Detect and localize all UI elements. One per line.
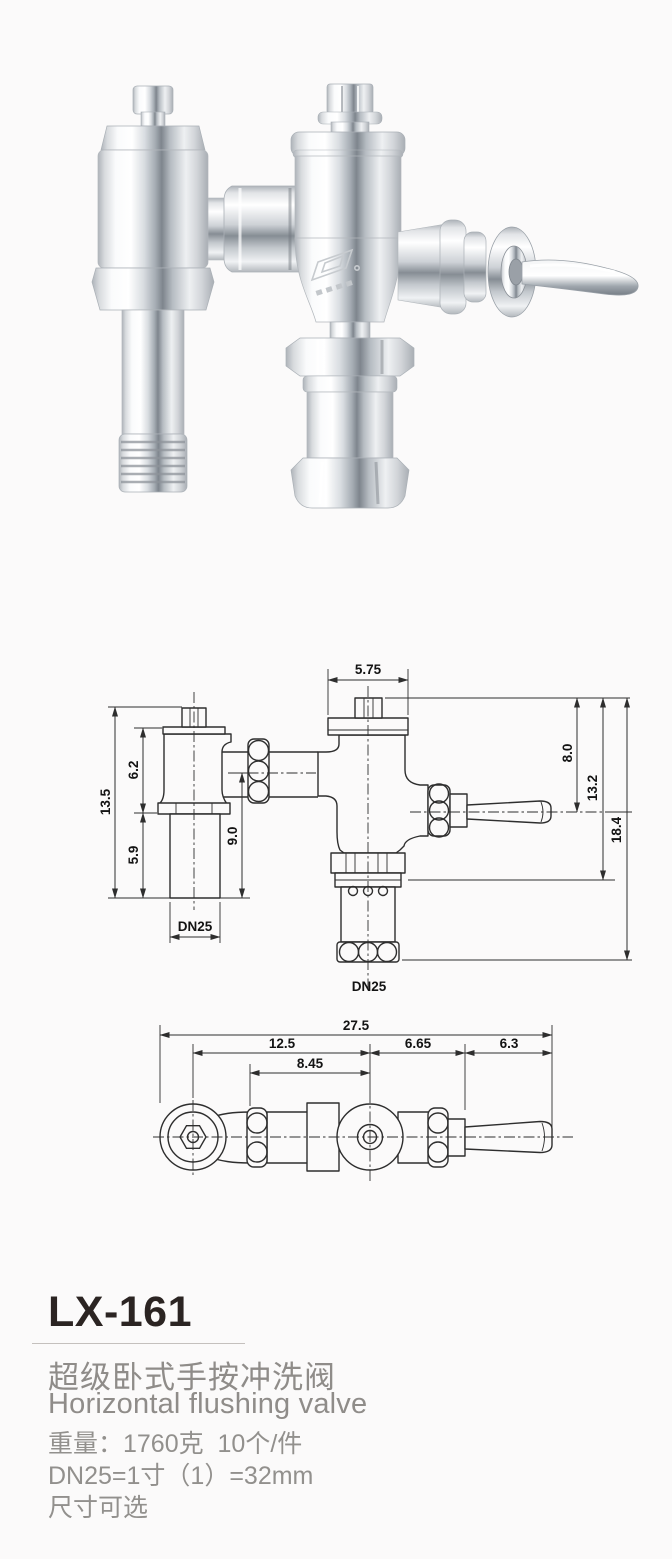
side-coupling-nut [248, 739, 269, 803]
dim-total-length: 27.5 [343, 1018, 370, 1033]
dim-bottom-outlet: DN25 [352, 979, 387, 994]
dim-top-to-handle: 8.0 [560, 744, 575, 763]
spec-weight: 重量：1760克 10个/件 [48, 1428, 313, 1460]
bottom-hex-nut [291, 458, 409, 508]
spec-note: 尺寸可选 [48, 1492, 313, 1524]
product-name-en: Horizontal flushing valve [48, 1388, 367, 1421]
title-divider [32, 1343, 245, 1344]
left-valve-unit [92, 86, 214, 492]
dim-inlet-center-height: 9.0 [225, 827, 240, 846]
dim-left-total-height: 13.5 [98, 788, 113, 815]
handle-assembly [398, 220, 638, 317]
inlet-pipe [122, 310, 184, 434]
dim-left-lower-height: 5.9 [126, 846, 141, 865]
dim-flange-to-valve-center: 12.5 [269, 1036, 296, 1051]
main-valve-unit [286, 84, 638, 508]
technical-drawing-top: 27.5 12.5 6.65 6.3 8.45 [100, 1000, 600, 1240]
outlet-pipe [307, 392, 393, 458]
side-main-valve [318, 698, 551, 962]
dim-valve-center-to-hub: 6.65 [405, 1036, 432, 1051]
push-button [133, 86, 173, 114]
dim-top-to-outlet-nut: 13.2 [585, 775, 600, 801]
product-specs: 重量：1760克 10个/件 DN25=1寸（1）=32mm 尺寸可选 [48, 1428, 313, 1524]
side-left-valve [158, 708, 231, 898]
pipe-threads [119, 434, 187, 492]
dim-coupling-to-valve-center: 8.45 [297, 1056, 324, 1071]
inlet-connector [200, 186, 310, 272]
dim-right-total-height: 18.4 [609, 816, 624, 843]
left-valve-body [98, 150, 208, 268]
side-inlet-pipe [170, 814, 220, 898]
dim-cap-width: 5.75 [355, 662, 382, 677]
coupling-nut [224, 186, 306, 272]
dim-left-upper-height: 6.2 [126, 761, 141, 780]
outlet-hex-nut [286, 338, 414, 376]
technical-drawing-side: 5.75 13.5 6.2 5.9 9.0 DN25 [60, 640, 640, 1000]
outlet-stack [286, 322, 414, 508]
main-valve-body [295, 156, 401, 240]
top-hex-nut [327, 84, 373, 114]
product-photo [0, 50, 672, 540]
product-model-title: LX-161 [48, 1288, 192, 1337]
dim-handle-length: 6.3 [500, 1036, 519, 1051]
dim-left-outlet: DN25 [178, 919, 213, 934]
product-datasheet-page: 5.75 13.5 6.2 5.9 9.0 DN25 [0, 0, 672, 1559]
spec-size: DN25=1寸（1）=32mm [48, 1460, 313, 1492]
